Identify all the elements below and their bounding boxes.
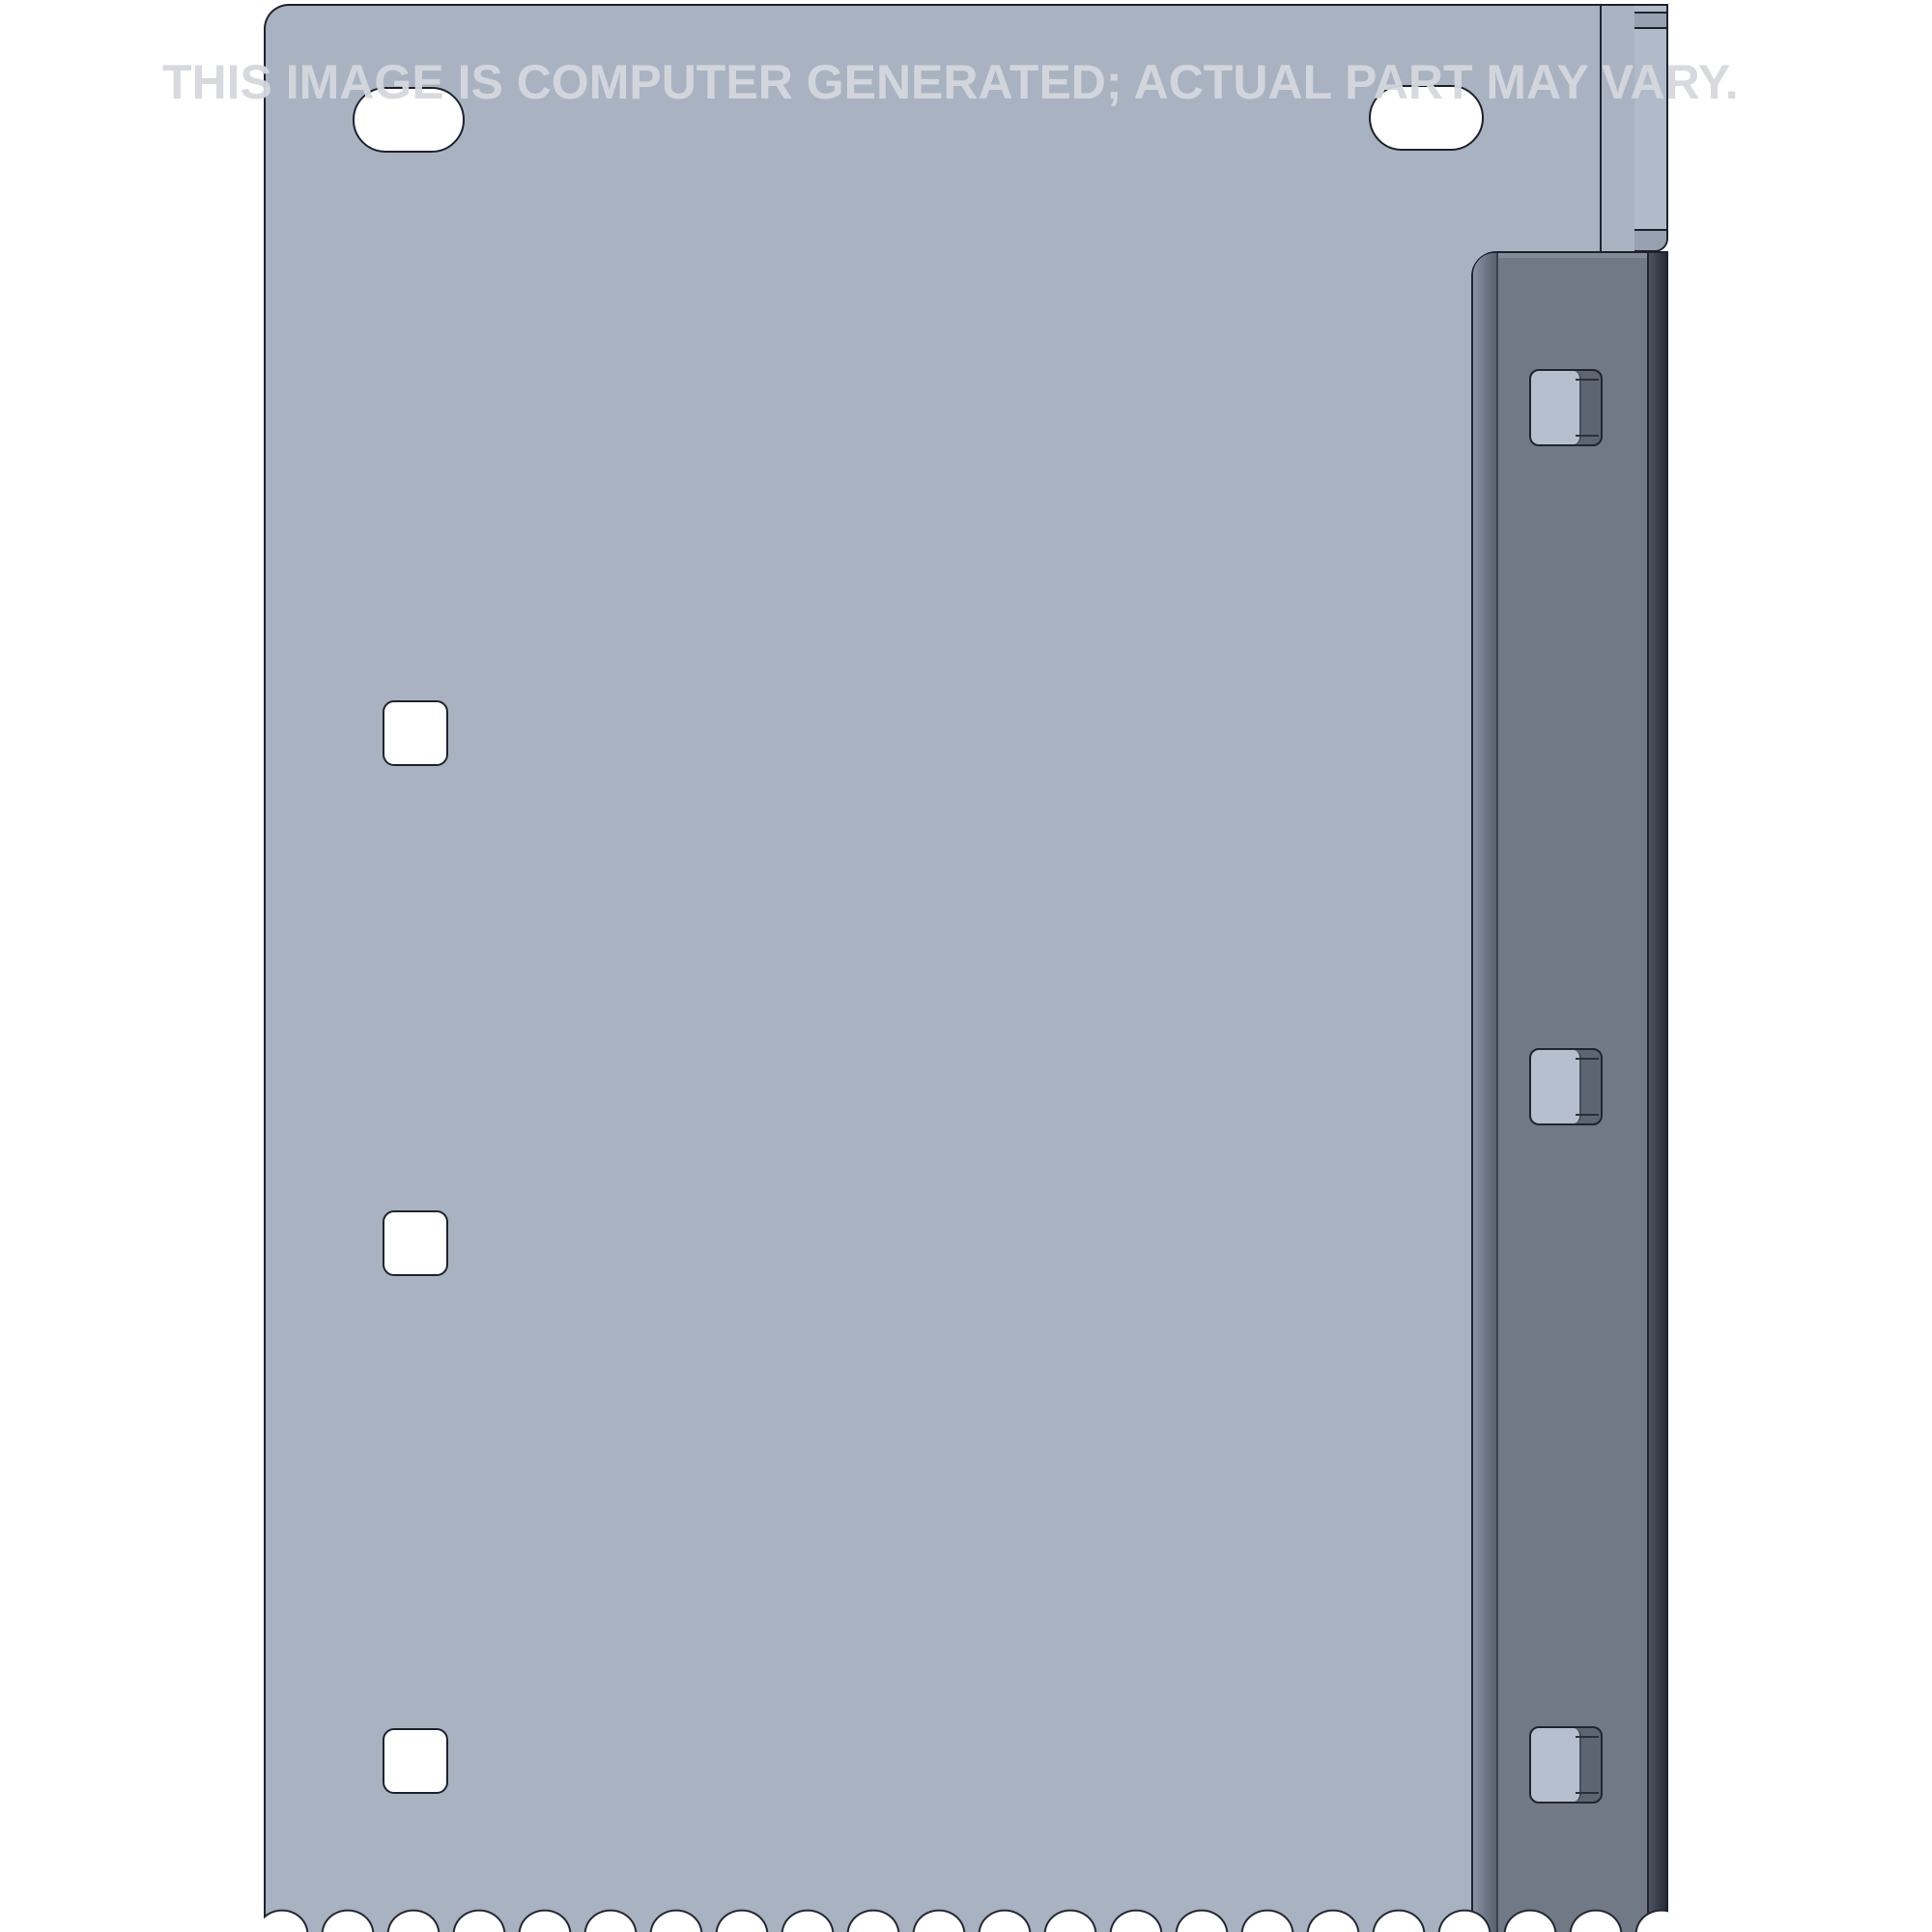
clip-chamfer (1576, 1114, 1599, 1116)
rail-right-edge (1647, 253, 1666, 1932)
rail-left-bevel (1473, 253, 1498, 1932)
square-hole-top (383, 700, 448, 766)
rail-clip-bottom (1529, 1726, 1603, 1804)
clip-face (1531, 1728, 1581, 1802)
right-flange-strip-outer (1634, 4, 1668, 252)
watermark-text: THIS IMAGE IS COMPUTER GENERATED; ACTUAL… (162, 54, 1739, 110)
right-flange-strip-inner (1600, 4, 1636, 255)
clip-chamfer (1576, 435, 1599, 437)
backing-plate (264, 4, 1602, 1932)
clip-chamfer (1576, 379, 1599, 381)
rail-clip-middle (1529, 1048, 1603, 1125)
flange-bottom-band (1634, 229, 1666, 250)
serrated-bottom-edge (264, 1907, 1668, 1932)
flange-top-band (1634, 12, 1666, 29)
cad-part-render: THIS IMAGE IS COMPUTER GENERATED; ACTUAL… (0, 0, 1932, 1932)
clip-chamfer (1576, 1792, 1599, 1794)
square-hole-middle (383, 1210, 448, 1276)
rail-clip-top (1529, 369, 1603, 446)
clip-face (1531, 1050, 1581, 1123)
square-hole-bottom (383, 1728, 448, 1794)
rail-top-face (1498, 253, 1647, 258)
clip-face (1531, 371, 1581, 444)
clip-chamfer (1576, 1736, 1599, 1738)
mounting-rail (1471, 251, 1668, 1932)
clip-chamfer (1576, 1058, 1599, 1060)
